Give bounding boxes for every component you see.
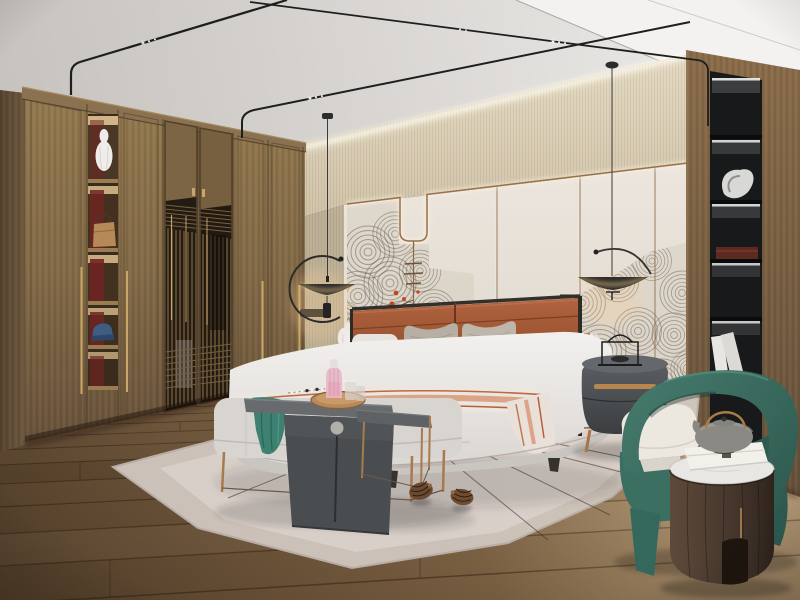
vignette	[0, 0, 800, 600]
bedroom-render	[0, 0, 800, 600]
bedroom-photo	[0, 0, 800, 600]
